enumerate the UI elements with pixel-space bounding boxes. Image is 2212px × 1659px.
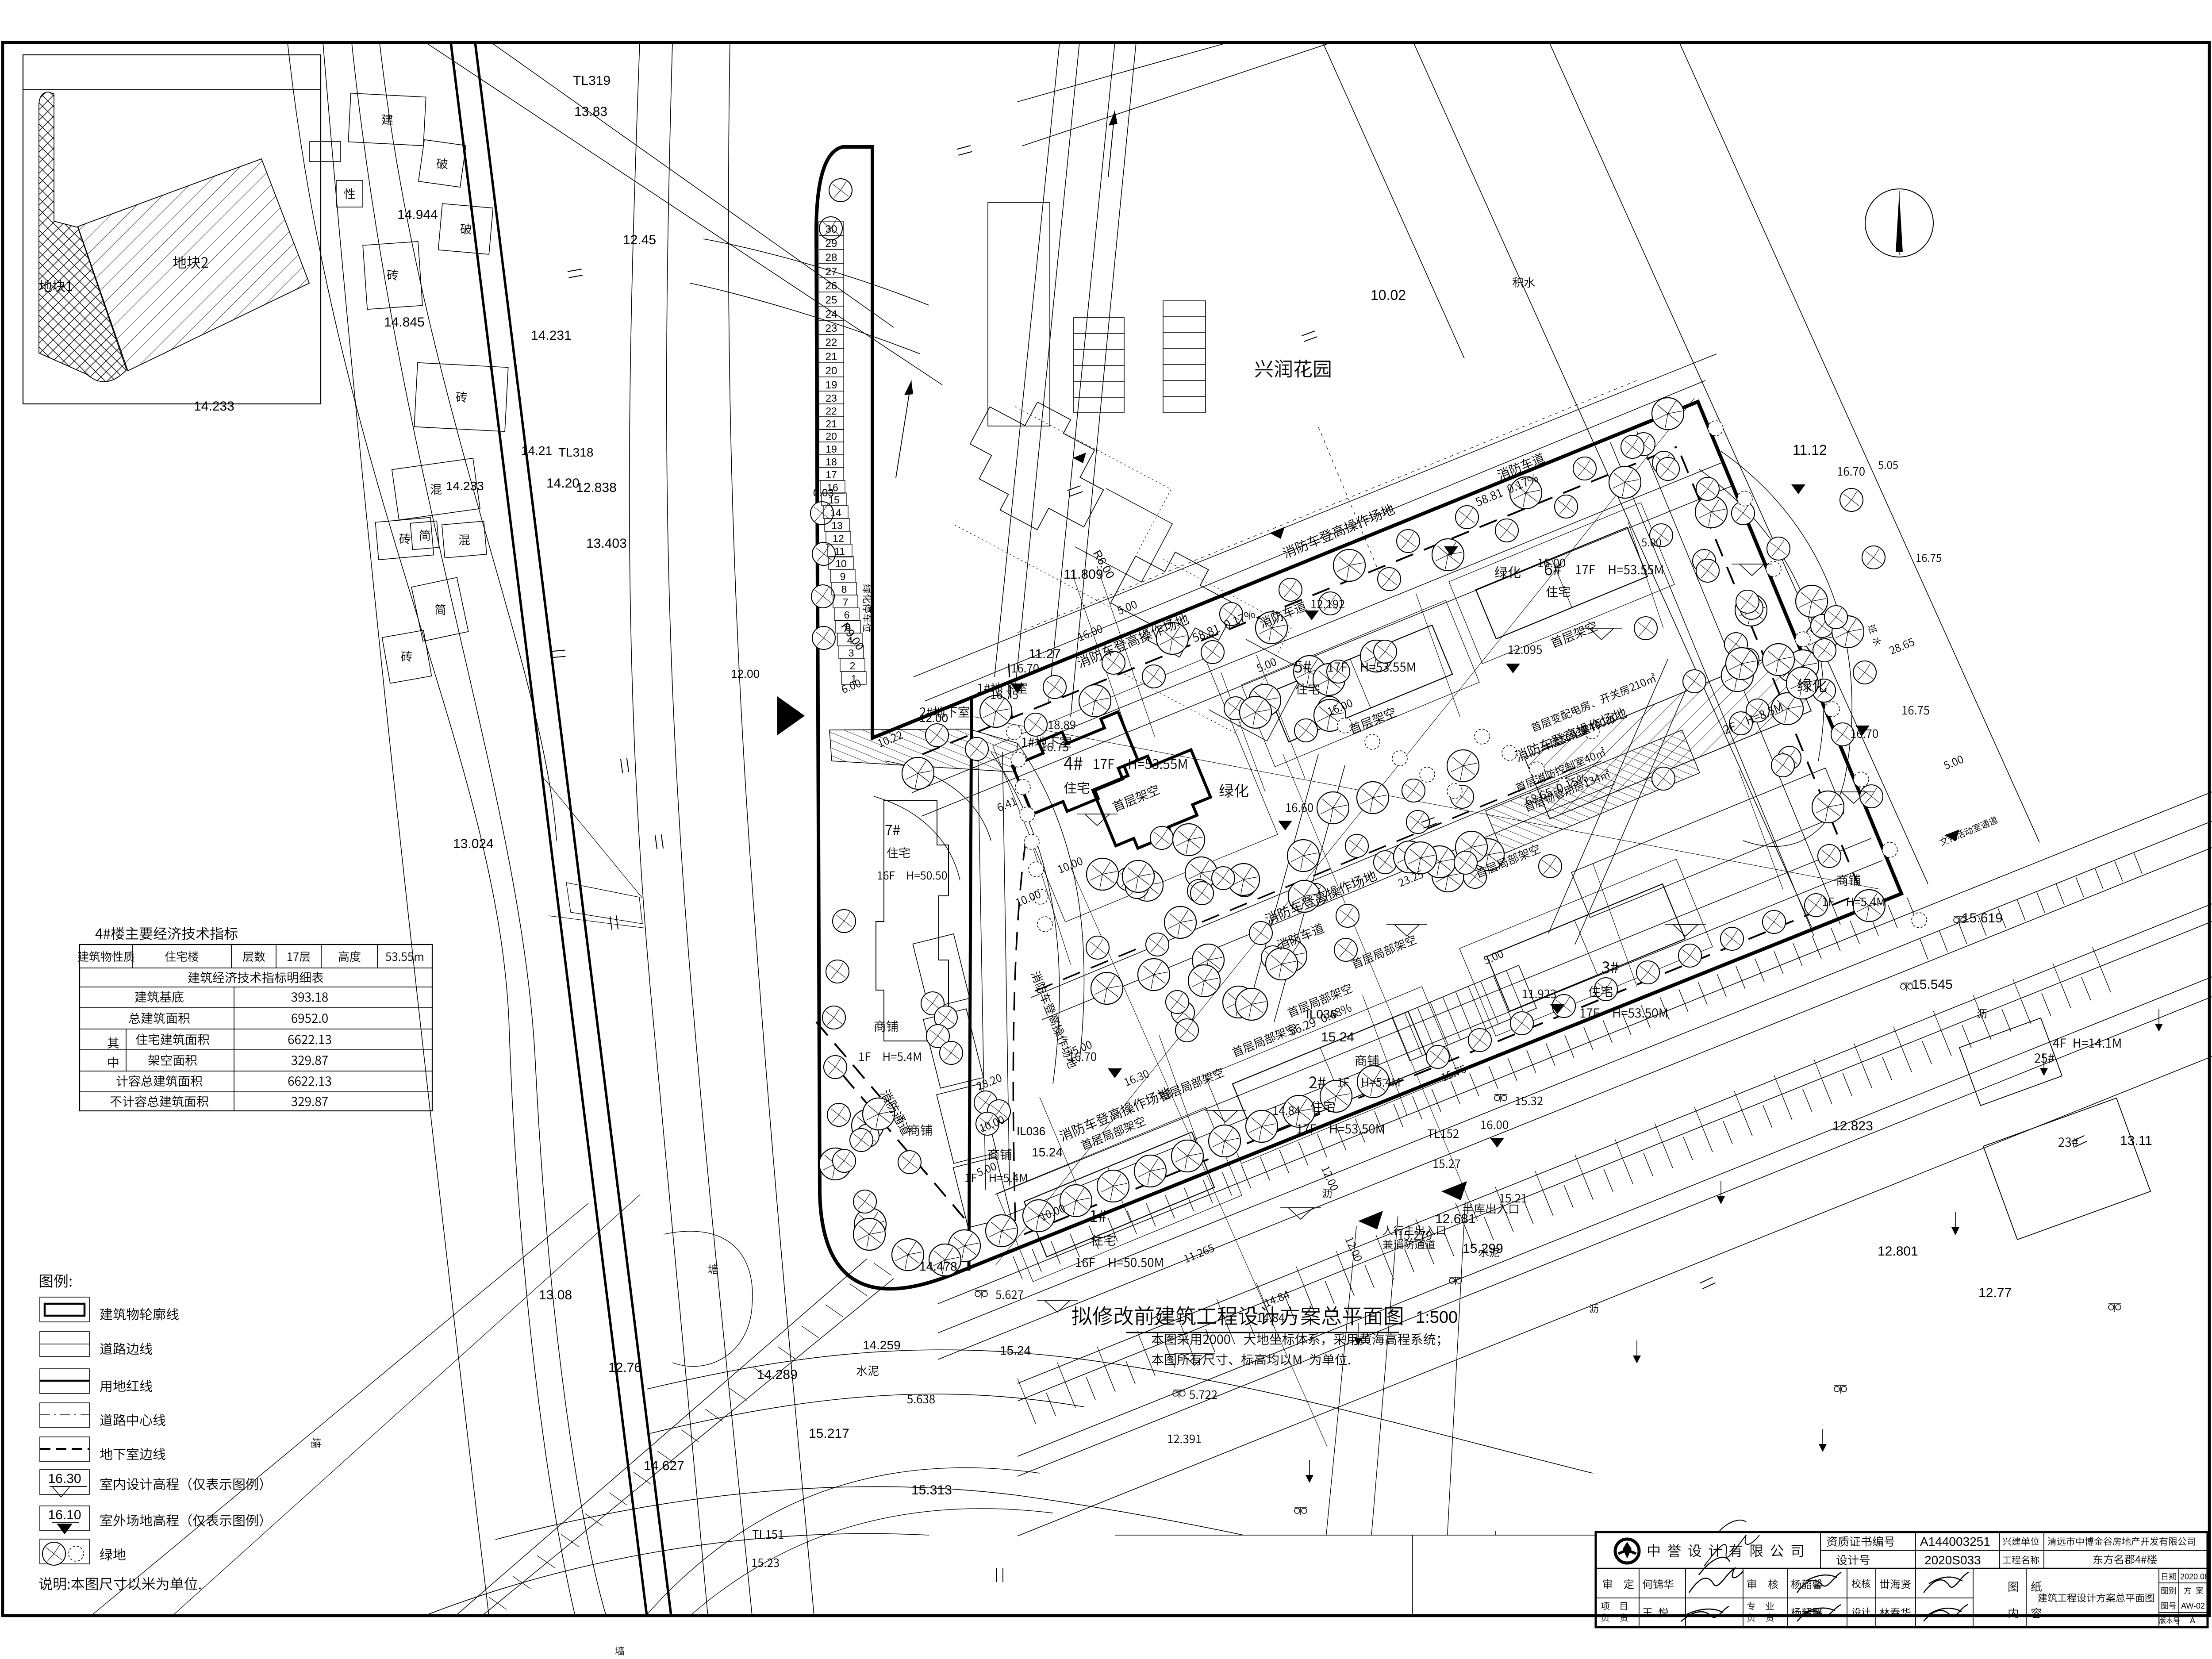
svg-text:11: 11 <box>834 545 845 557</box>
svg-text:14.478: 14.478 <box>919 1260 957 1273</box>
svg-text:14.627: 14.627 <box>644 1459 684 1473</box>
svg-text:9: 9 <box>840 571 846 582</box>
svg-text:13.024: 13.024 <box>453 837 494 851</box>
svg-text:12.838: 12.838 <box>576 480 617 495</box>
svg-text:12.45: 12.45 <box>623 233 656 247</box>
svg-text:12.801: 12.801 <box>1878 1244 1918 1259</box>
svg-text:0.03: 0.03 <box>813 487 834 499</box>
svg-text:12: 12 <box>833 533 844 544</box>
svg-text:1:500: 1:500 <box>1416 1308 1458 1327</box>
svg-text:13: 13 <box>831 520 843 531</box>
svg-text:AW-02: AW-02 <box>2181 1601 2205 1610</box>
svg-text:15.545: 15.545 <box>1912 977 1953 992</box>
svg-text:18: 18 <box>826 456 837 468</box>
svg-text:22: 22 <box>826 337 837 349</box>
svg-text:28: 28 <box>826 252 837 264</box>
svg-text:14.21: 14.21 <box>521 444 552 457</box>
svg-text:21: 21 <box>826 418 837 430</box>
svg-text:15.217: 15.217 <box>809 1426 849 1441</box>
svg-text:14.20: 14.20 <box>546 476 580 491</box>
svg-text:12.00: 12.00 <box>919 711 948 725</box>
svg-text:23: 23 <box>826 392 837 404</box>
svg-text:14.231: 14.231 <box>531 328 572 343</box>
svg-text:14.233: 14.233 <box>194 399 234 414</box>
svg-text:12.77: 12.77 <box>1978 1286 2012 1300</box>
svg-text:14.944: 14.944 <box>397 207 438 222</box>
svg-text:11.27: 11.27 <box>1029 647 1061 661</box>
svg-text:29: 29 <box>826 238 837 250</box>
svg-text:11.12: 11.12 <box>1793 442 1827 458</box>
svg-text:23: 23 <box>826 323 837 334</box>
svg-text:15.24: 15.24 <box>1032 1145 1063 1159</box>
svg-text:A: A <box>2190 1616 2195 1625</box>
svg-text:24: 24 <box>826 308 837 320</box>
svg-text:13.11: 13.11 <box>2120 1133 2152 1148</box>
svg-text:14.845: 14.845 <box>384 315 425 330</box>
svg-text:IL036: IL036 <box>1017 1125 1045 1138</box>
svg-text:2020S033: 2020S033 <box>1924 1553 1981 1567</box>
svg-text:15.24: 15.24 <box>1321 1030 1354 1045</box>
svg-text:8: 8 <box>841 584 847 595</box>
svg-text:11.809: 11.809 <box>1064 567 1103 582</box>
svg-text:12.76: 12.76 <box>608 1360 641 1375</box>
svg-text:13.403: 13.403 <box>586 536 627 551</box>
svg-text:15.619: 15.619 <box>1962 911 2003 926</box>
svg-text:15.24: 15.24 <box>1000 1344 1031 1357</box>
svg-text:14: 14 <box>830 507 841 518</box>
svg-text:A144003251: A144003251 <box>1920 1535 1990 1548</box>
svg-text:25: 25 <box>826 294 837 306</box>
svg-text:7: 7 <box>843 596 849 608</box>
svg-text:2: 2 <box>850 660 856 672</box>
svg-text:12.00: 12.00 <box>731 667 760 680</box>
svg-text:14.259: 14.259 <box>863 1338 901 1352</box>
svg-text:19: 19 <box>826 443 837 455</box>
svg-text:16.10: 16.10 <box>48 1508 81 1522</box>
svg-text:13.83: 13.83 <box>574 104 607 119</box>
svg-text:27: 27 <box>826 266 837 278</box>
svg-text:15.313: 15.313 <box>911 1483 952 1498</box>
svg-text:19: 19 <box>826 379 837 391</box>
svg-text:21: 21 <box>826 351 837 363</box>
svg-text:30: 30 <box>826 223 837 235</box>
svg-text:20: 20 <box>826 430 837 442</box>
svg-text:22: 22 <box>826 405 837 417</box>
svg-text:10.02: 10.02 <box>1371 287 1406 303</box>
svg-text:3: 3 <box>849 647 854 659</box>
svg-text:14.233: 14.233 <box>446 479 484 493</box>
svg-text:17: 17 <box>826 469 837 480</box>
svg-text:TL318: TL318 <box>558 445 593 459</box>
svg-text:IL036: IL036 <box>1306 1007 1337 1021</box>
svg-text:12.823: 12.823 <box>1832 1119 1873 1133</box>
svg-text:6: 6 <box>844 609 850 621</box>
svg-text:16.30: 16.30 <box>48 1471 81 1486</box>
svg-text:26: 26 <box>826 280 837 292</box>
svg-text:2020.08: 2020.08 <box>2180 1572 2209 1581</box>
svg-text:14.289: 14.289 <box>757 1367 798 1382</box>
svg-text:13.08: 13.08 <box>539 1288 572 1302</box>
svg-text:10: 10 <box>835 558 847 569</box>
svg-text:15.299: 15.299 <box>1463 1241 1503 1256</box>
svg-text:12.681: 12.681 <box>1435 1212 1476 1226</box>
svg-text:TL319: TL319 <box>573 73 611 88</box>
svg-text:20: 20 <box>826 365 837 377</box>
